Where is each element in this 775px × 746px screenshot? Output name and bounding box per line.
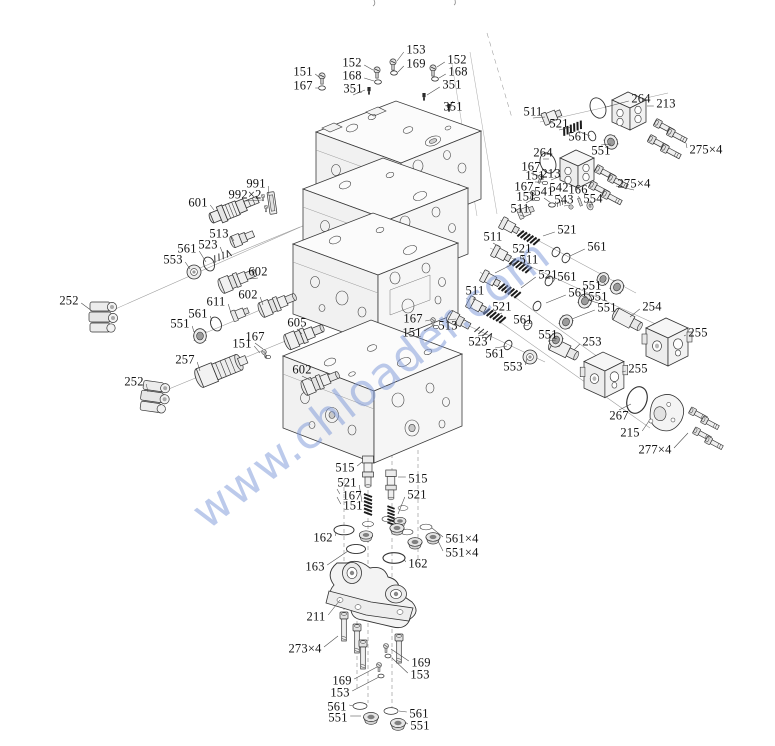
part-callout-153: 153	[406, 43, 425, 58]
part-callout-515: 515	[335, 461, 354, 476]
part-callout-561: 561	[188, 307, 207, 322]
part-callout-277×4: 277×4	[638, 443, 671, 458]
part-callout-264: 264	[631, 92, 650, 107]
part-callout-151: 151	[232, 337, 251, 352]
part-callout-151: 151	[402, 326, 421, 341]
part-callout-513: 513	[438, 319, 457, 334]
part-callout-254: 254	[642, 300, 661, 315]
part-callout-992×2: 992×2	[228, 188, 261, 203]
part-callout-215: 215	[620, 426, 639, 441]
part-callout-551: 551	[410, 719, 429, 734]
part-callout-561: 561	[513, 313, 532, 328]
cropped-top-fragments	[373, 0, 455, 6]
part-callout-515: 515	[408, 472, 427, 487]
part-callout-561: 561	[557, 270, 576, 285]
diagram-artwork	[0, 0, 775, 746]
part-callout-553: 553	[163, 253, 182, 268]
part-callout-169: 169	[406, 57, 425, 72]
part-callout-543: 543	[554, 193, 573, 208]
part-callout-273×4: 273×4	[288, 642, 321, 657]
part-callout-351: 351	[442, 78, 461, 93]
part-callout-351: 351	[443, 100, 462, 115]
part-callout-521: 521	[492, 300, 511, 315]
part-callout-162: 162	[313, 531, 332, 546]
part-callout-551: 551	[328, 711, 347, 726]
part-callout-561: 561	[587, 240, 606, 255]
part-callout-561: 561	[485, 347, 504, 362]
part-callout-602: 602	[238, 288, 257, 303]
part-callout-255: 255	[688, 326, 707, 341]
valve-body-blocks	[283, 101, 481, 463]
part-callout-551: 551	[597, 301, 616, 316]
part-callout-151: 151	[343, 499, 362, 514]
part-callout-551: 551	[538, 328, 557, 343]
part-callout-151: 151	[293, 65, 312, 80]
part-callout-561: 561	[568, 130, 587, 145]
part-callout-211: 211	[307, 610, 326, 625]
part-callout-611: 611	[207, 295, 226, 310]
part-callout-602: 602	[248, 265, 267, 280]
part-callout-267: 267	[609, 409, 628, 424]
part-callout-351: 351	[343, 82, 362, 97]
part-callout-167: 167	[293, 79, 312, 94]
part-callout-601: 601	[188, 196, 207, 211]
part-callout-275×4: 275×4	[617, 177, 650, 192]
part-callout-521: 521	[549, 117, 568, 132]
part-callout-521: 521	[407, 488, 426, 503]
part-callout-521: 521	[557, 223, 576, 238]
part-callout-153: 153	[410, 668, 429, 683]
part-callout-511: 511	[484, 230, 503, 245]
part-callout-257: 257	[175, 353, 194, 368]
part-callout-511: 511	[511, 202, 530, 217]
part-callout-554: 554	[583, 192, 602, 207]
part-callout-511: 511	[466, 284, 485, 299]
part-callout-523: 523	[198, 238, 217, 253]
part-callout-605: 605	[287, 316, 306, 331]
part-callout-553: 553	[503, 360, 522, 375]
part-callout-252: 252	[59, 294, 78, 309]
part-callout-551: 551	[170, 317, 189, 332]
part-callout-264: 264	[533, 146, 552, 161]
part-callout-551×4: 551×4	[445, 546, 478, 561]
part-callout-162: 162	[408, 557, 427, 572]
part-callout-255: 255	[628, 362, 647, 377]
part-callout-521: 521	[538, 268, 557, 283]
part-callout-252: 252	[124, 375, 143, 390]
part-callout-167: 167	[403, 312, 422, 327]
part-callout-551: 551	[591, 144, 610, 159]
part-callout-511: 511	[520, 253, 539, 268]
part-callout-253: 253	[582, 335, 601, 350]
part-callout-561×4: 561×4	[445, 532, 478, 547]
exploded-parts-diagram: www.chloader.com 15116715216835115316915…	[0, 0, 775, 746]
flange-211	[326, 561, 416, 627]
part-callout-163: 163	[305, 560, 324, 575]
part-callout-213: 213	[656, 97, 675, 112]
part-callout-275×4: 275×4	[689, 143, 722, 158]
part-callout-561: 561	[568, 286, 587, 301]
part-callout-511: 511	[524, 105, 543, 120]
part-callout-153: 153	[330, 686, 349, 701]
part-callout-602: 602	[292, 363, 311, 378]
part-callout-213: 213	[541, 167, 560, 182]
